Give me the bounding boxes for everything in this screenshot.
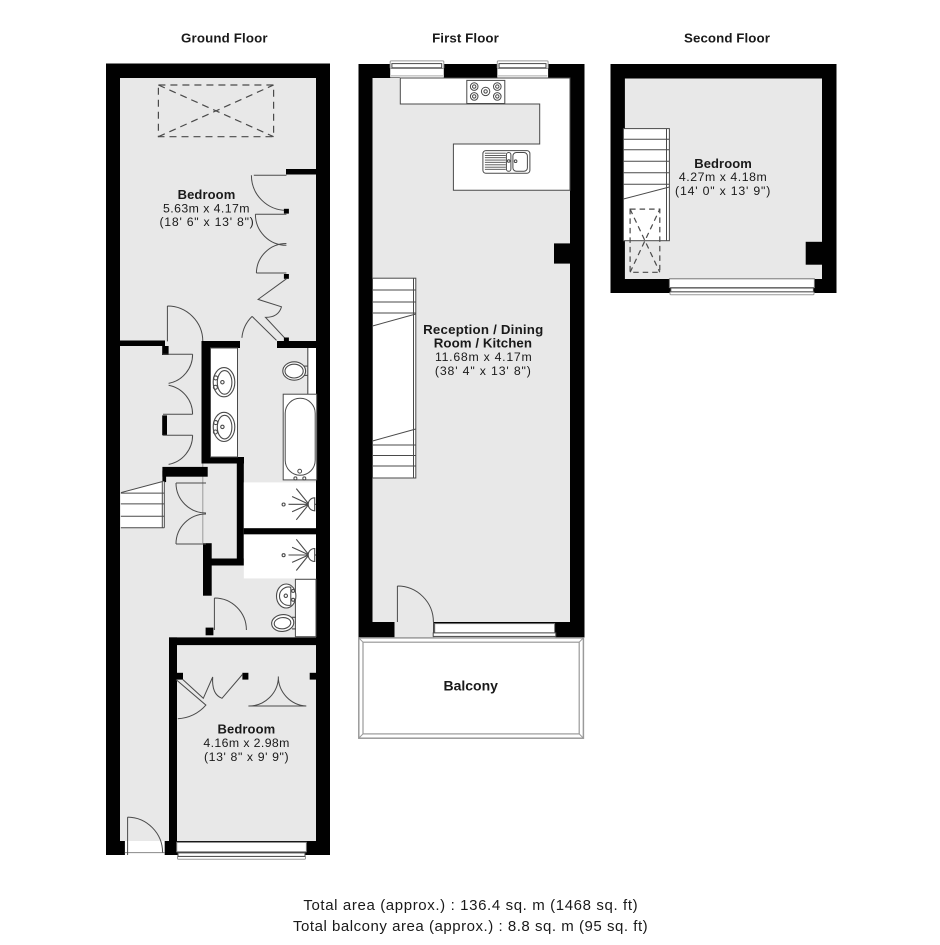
svg-text:5.63m x 4.17m: 5.63m x 4.17m <box>163 201 250 215</box>
svg-text:Total balcony area (approx.) :: Total balcony area (approx.) : 8.8 sq. m… <box>293 918 648 935</box>
svg-text:11.68m x 4.17m: 11.68m x 4.17m <box>435 350 532 364</box>
svg-text:(13' 8" x 9' 9"): (13' 8" x 9' 9") <box>204 750 289 764</box>
svg-text:(18' 6" x 13' 8"): (18' 6" x 13' 8") <box>159 215 254 229</box>
svg-text:First Floor: First Floor <box>432 30 499 45</box>
svg-text:(14' 0" x 13' 9"): (14' 0" x 13' 9") <box>675 184 771 198</box>
svg-text:4.16m x 2.98m: 4.16m x 2.98m <box>203 736 289 750</box>
svg-text:Balcony: Balcony <box>443 678 498 694</box>
svg-text:Room / Kitchen: Room / Kitchen <box>434 336 532 351</box>
svg-text:Ground Floor: Ground Floor <box>181 30 268 45</box>
svg-text:(38' 4" x 13' 8"): (38' 4" x 13' 8") <box>435 364 532 378</box>
svg-text:Total area (approx.) : 136.4 s: Total area (approx.) : 136.4 sq. m (1468… <box>303 897 638 914</box>
svg-text:4.27m x 4.18m: 4.27m x 4.18m <box>679 170 768 184</box>
svg-text:Second Floor: Second Floor <box>684 30 770 45</box>
svg-text:Bedroom: Bedroom <box>694 156 752 171</box>
svg-text:Reception / Dining: Reception / Dining <box>423 322 543 337</box>
svg-text:Bedroom: Bedroom <box>178 187 236 202</box>
svg-text:Bedroom: Bedroom <box>218 721 276 736</box>
